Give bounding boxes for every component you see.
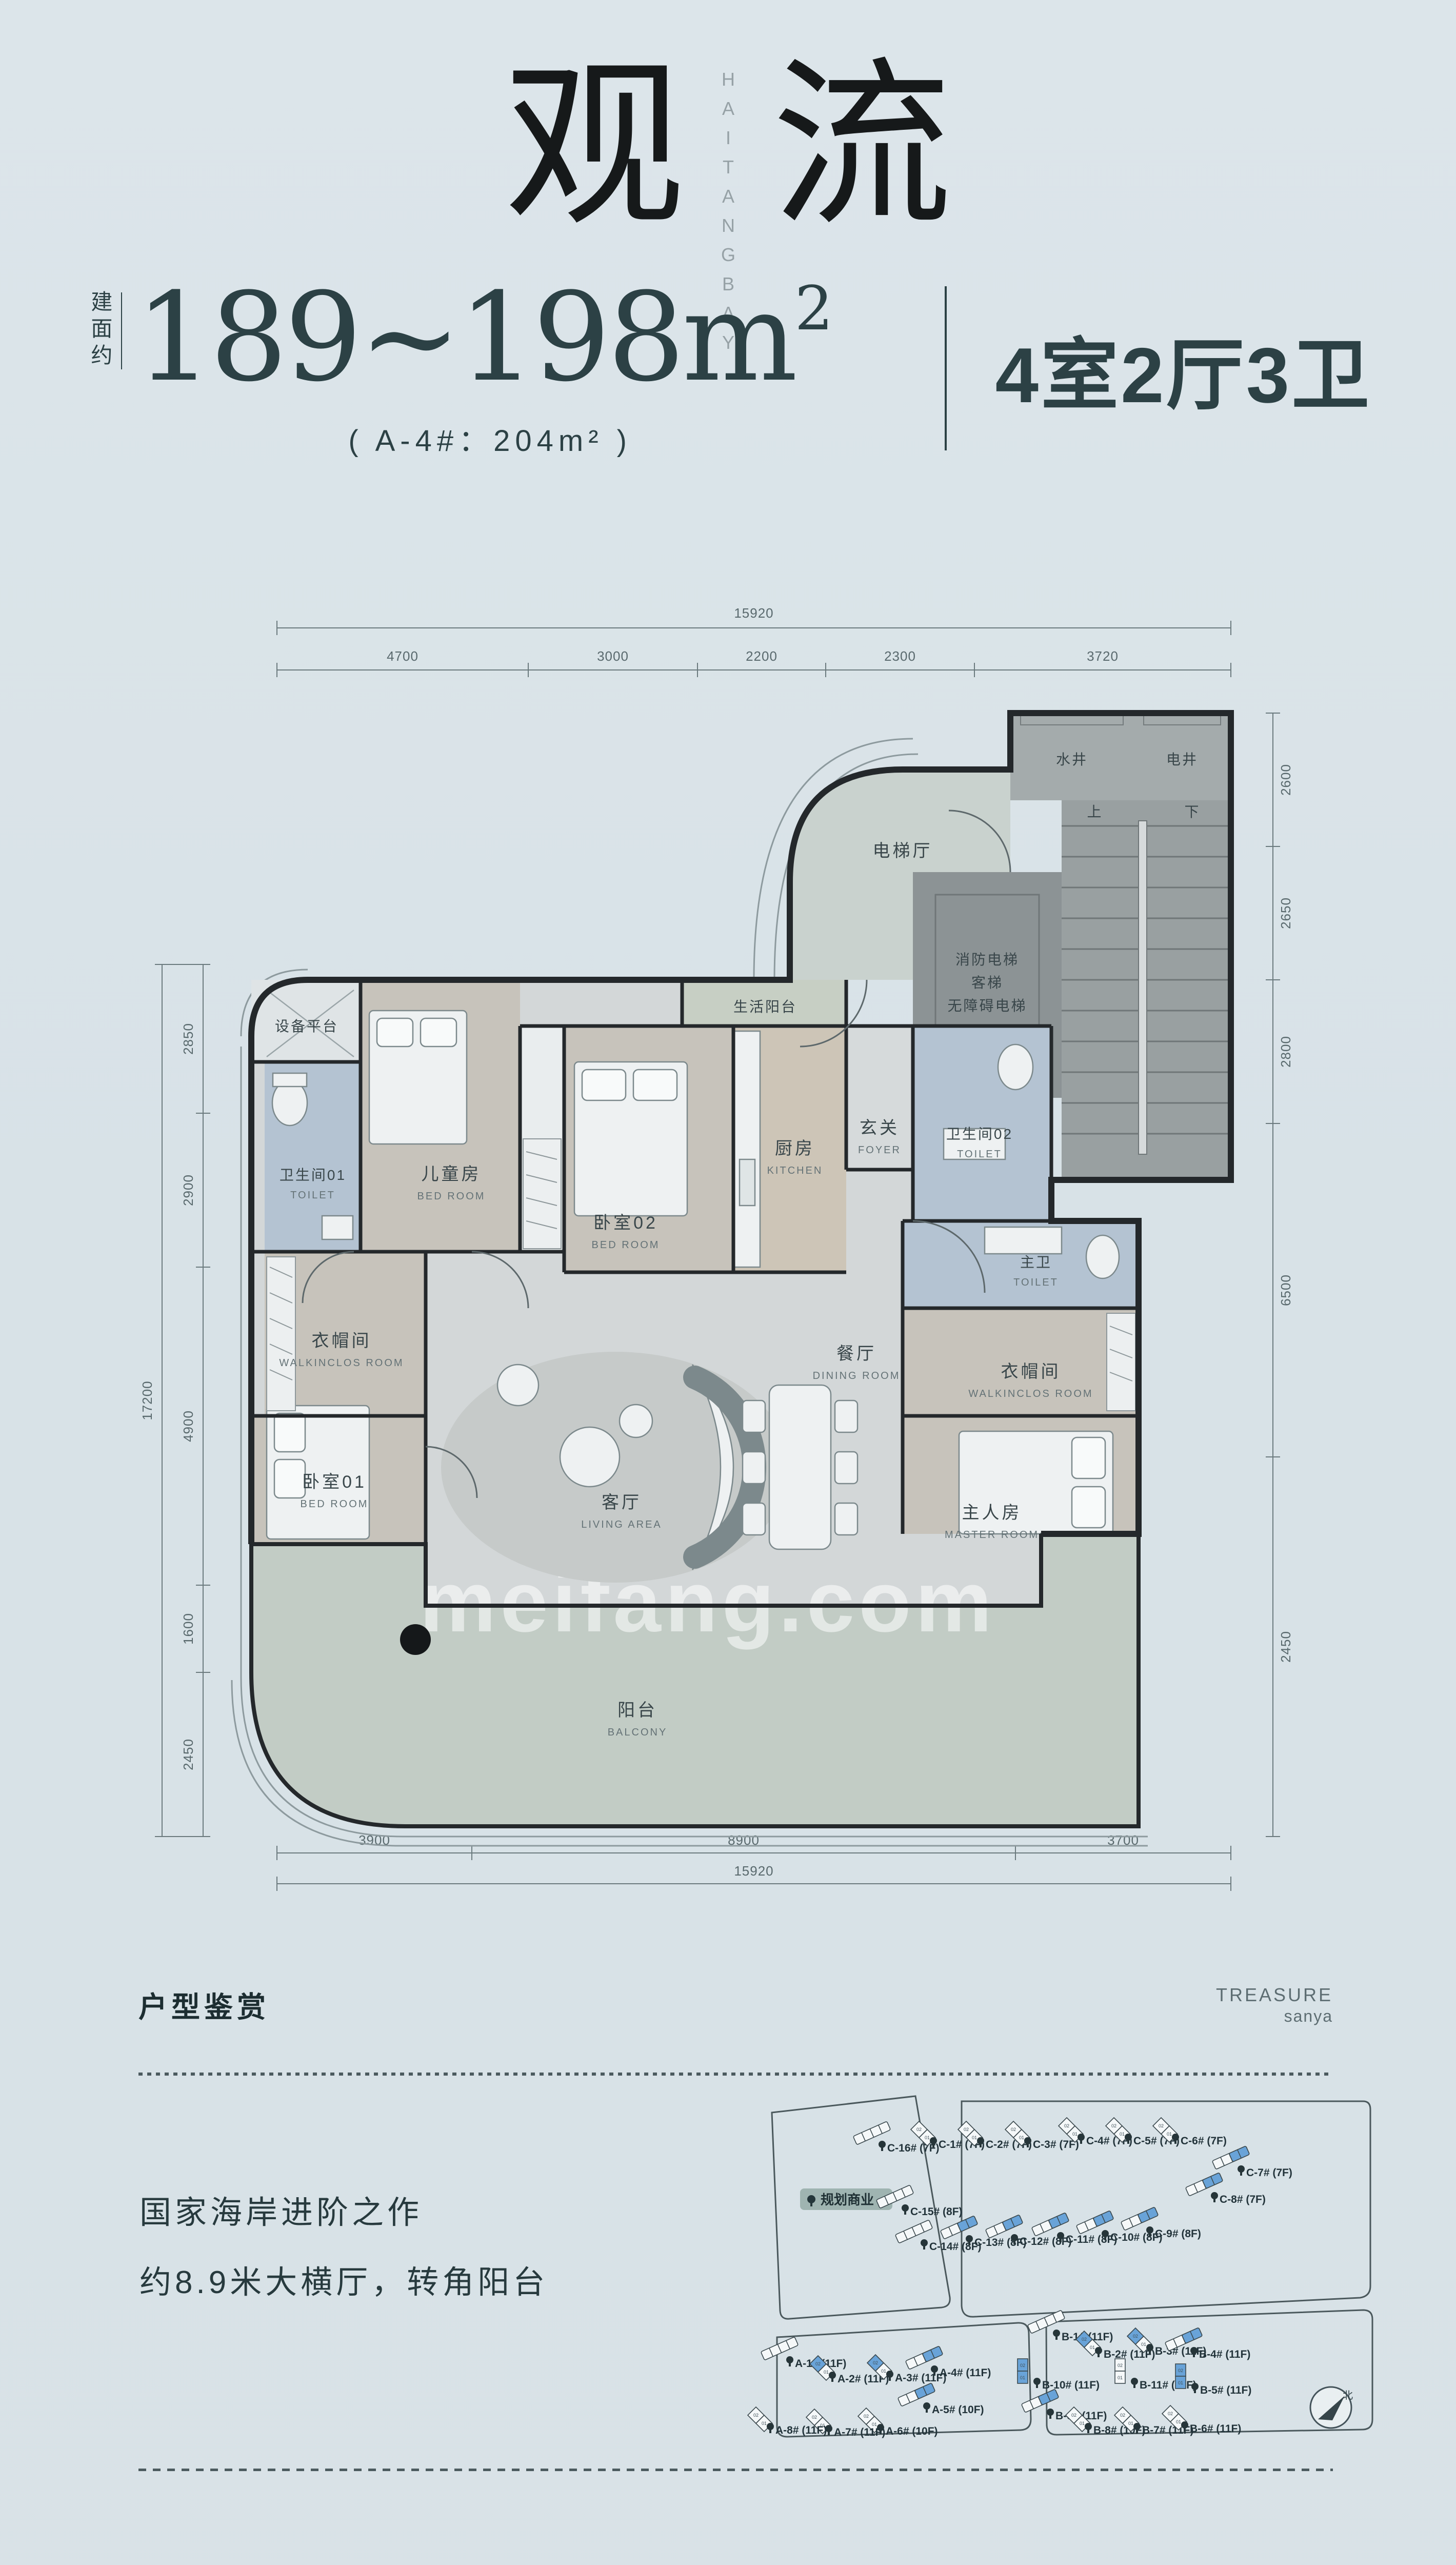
svg-text:2900: 2900 bbox=[181, 1174, 196, 1206]
svg-text:C-3# (7F): C-3# (7F) bbox=[1033, 2139, 1079, 2150]
svg-text:电井: 电井 bbox=[1166, 752, 1198, 767]
svg-text:2200: 2200 bbox=[746, 648, 777, 664]
svg-text:01: 01 bbox=[762, 2421, 767, 2426]
siteplan-building-marker: B-9# (11F) bbox=[1021, 2389, 1107, 2422]
svg-text:餐厅: 餐厅 bbox=[836, 1344, 876, 1364]
svg-text:C-9# (8F): C-9# (8F) bbox=[1155, 2228, 1201, 2240]
svg-text:A-4# (11F): A-4# (11F) bbox=[940, 2367, 991, 2379]
svg-text:01: 01 bbox=[1072, 2132, 1078, 2137]
room-label-foyer: 玄关FOYER bbox=[858, 1118, 901, 1156]
area-label: 建面约 bbox=[85, 290, 116, 370]
room-label-bed2: 卧室02BED ROOM bbox=[592, 1213, 660, 1251]
svg-text:B-6# (11F): B-6# (11F) bbox=[1190, 2423, 1241, 2435]
svg-text:02: 02 bbox=[1082, 2337, 1087, 2342]
svg-text:玄关: 玄关 bbox=[860, 1118, 900, 1138]
room-label-kitchen: 厨房KITCHEN bbox=[767, 1139, 823, 1176]
svg-text:FOYER: FOYER bbox=[858, 1145, 901, 1156]
svg-text:01: 01 bbox=[1128, 2421, 1133, 2426]
room-label-kids: 儿童房BED ROOM bbox=[417, 1165, 486, 1202]
title-watermark: HAITANGBAY bbox=[717, 55, 739, 284]
siteplan-building-marker: C-7# (7F) bbox=[1212, 2146, 1292, 2179]
svg-text:C-7# (7F): C-7# (7F) bbox=[1246, 2167, 1292, 2179]
svg-text:A-3# (11F): A-3# (11F) bbox=[895, 2372, 946, 2384]
room-label-water-well: 水井 bbox=[1056, 752, 1088, 767]
svg-text:02: 02 bbox=[1111, 2123, 1116, 2128]
area-note: ( A-4#：204m² ) bbox=[348, 417, 632, 460]
svg-text:BALCONY: BALCONY bbox=[608, 1727, 668, 1738]
svg-text:01: 01 bbox=[824, 2370, 829, 2375]
svg-text:A-7# (11F): A-7# (11F) bbox=[834, 2426, 885, 2438]
svg-text:C-14# (8F): C-14# (8F) bbox=[929, 2241, 982, 2253]
svg-text:17200: 17200 bbox=[139, 1380, 155, 1420]
svg-text:02: 02 bbox=[873, 2360, 878, 2365]
area-bracket-line bbox=[121, 292, 122, 369]
siteplan-building-marker: A-5# (10F) bbox=[897, 2383, 984, 2416]
svg-text:A-8# (11F): A-8# (11F) bbox=[775, 2424, 827, 2436]
svg-text:01: 01 bbox=[1019, 2135, 1024, 2140]
svg-text:02: 02 bbox=[1118, 2363, 1123, 2368]
svg-text:厨房: 厨房 bbox=[775, 1139, 815, 1158]
svg-text:C-13# (8F): C-13# (8F) bbox=[974, 2237, 1027, 2248]
svg-text:02: 02 bbox=[964, 2127, 969, 2132]
svg-text:TOILET: TOILET bbox=[957, 1149, 1002, 1160]
svg-text:01: 01 bbox=[1120, 2132, 1125, 2137]
svg-text:C-11# (8F): C-11# (8F) bbox=[1066, 2234, 1117, 2245]
selling-point-2: 约8.9米大横厅，转角阳台 bbox=[139, 2256, 548, 2302]
svg-text:02: 02 bbox=[1159, 2123, 1164, 2128]
svg-text:B-5# (11F): B-5# (11F) bbox=[1200, 2384, 1251, 2396]
svg-text:B-10# (11F): B-10# (11F) bbox=[1042, 2379, 1100, 2391]
svg-text:01: 01 bbox=[1090, 2345, 1095, 2350]
svg-text:B-2# (11F): B-2# (11F) bbox=[1104, 2349, 1155, 2360]
room-label-bed1: 卧室01BED ROOM bbox=[301, 1472, 369, 1510]
svg-text:4900: 4900 bbox=[181, 1410, 196, 1442]
svg-text:01: 01 bbox=[1167, 2132, 1172, 2137]
svg-text:BED ROOM: BED ROOM bbox=[417, 1191, 486, 1202]
north-arrow-icon: 北 bbox=[1310, 2387, 1353, 2428]
svg-text:衣帽间: 衣帽间 bbox=[312, 1331, 372, 1351]
title-char-left: 观 bbox=[504, 55, 685, 236]
svg-text:主卫: 主卫 bbox=[1020, 1254, 1052, 1270]
svg-text:2450: 2450 bbox=[1278, 1631, 1293, 1663]
svg-text:2650: 2650 bbox=[1278, 897, 1293, 929]
room-label-hall: 电梯厅 bbox=[873, 841, 933, 861]
svg-text:2600: 2600 bbox=[1278, 764, 1293, 796]
svg-text:01: 01 bbox=[1176, 2419, 1181, 2424]
poster-page: 观 HAITANGBAY 流 建面约 189~198m2 ( A-4#：204m… bbox=[0, 0, 1456, 2565]
svg-text:客梯: 客梯 bbox=[971, 975, 1003, 991]
svg-text:2850: 2850 bbox=[181, 1023, 196, 1055]
room-count-label: 4室2厅3卫 bbox=[995, 312, 1372, 425]
svg-text:C-12# (8F): C-12# (8F) bbox=[1020, 2236, 1072, 2247]
svg-text:MASTER ROOM: MASTER ROOM bbox=[945, 1529, 1039, 1541]
svg-text:C-8# (7F): C-8# (7F) bbox=[1220, 2194, 1266, 2205]
svg-text:2800: 2800 bbox=[1278, 1036, 1293, 1068]
svg-text:C-6# (7F): C-6# (7F) bbox=[1181, 2135, 1227, 2147]
svg-text:02: 02 bbox=[1178, 2368, 1183, 2373]
floorplan-drawing: 15920 4700 3000 2200 2300 3720 17200 285… bbox=[113, 585, 1344, 1898]
section-title: 户型鉴赏 bbox=[138, 1984, 270, 2026]
svg-text:C-15# (8F): C-15# (8F) bbox=[910, 2206, 963, 2218]
svg-text:4700: 4700 bbox=[387, 648, 418, 664]
svg-text:卫生间02: 卫生间02 bbox=[946, 1126, 1013, 1142]
svg-text:15920: 15920 bbox=[734, 605, 773, 621]
svg-text:KITCHEN: KITCHEN bbox=[767, 1165, 823, 1176]
dotted-divider bbox=[138, 2073, 1333, 2076]
svg-text:B-4# (11F): B-4# (11F) bbox=[1199, 2349, 1250, 2360]
svg-text:01: 01 bbox=[1141, 2342, 1146, 2347]
structure-column bbox=[400, 1624, 431, 1655]
svg-text:15920: 15920 bbox=[734, 1863, 773, 1879]
svg-text:衣帽间: 衣帽间 bbox=[1001, 1362, 1061, 1382]
svg-text:WALKINCLOS ROOM: WALKINCLOS ROOM bbox=[968, 1388, 1093, 1399]
area-superscript: 2 bbox=[794, 273, 833, 344]
svg-text:C-16# (7F): C-16# (7F) bbox=[887, 2142, 940, 2154]
svg-text:02: 02 bbox=[1011, 2127, 1016, 2132]
svg-text:3720: 3720 bbox=[1087, 648, 1119, 664]
svg-text:卫生间01: 卫生间01 bbox=[280, 1167, 346, 1183]
svg-text:主人房: 主人房 bbox=[962, 1503, 1022, 1523]
siteplan-building-marker: A-1# (11F) bbox=[761, 2337, 846, 2370]
svg-text:阳台: 阳台 bbox=[617, 1701, 657, 1720]
svg-text:01: 01 bbox=[1178, 2380, 1183, 2385]
svg-text:生活阳台: 生活阳台 bbox=[733, 999, 797, 1015]
svg-text:01: 01 bbox=[1020, 2375, 1025, 2380]
svg-text:北: 北 bbox=[1343, 2390, 1353, 2401]
svg-text:DINING ROOM: DINING ROOM bbox=[813, 1370, 901, 1382]
brand-line2: sanya bbox=[1284, 2007, 1333, 2026]
svg-text:2450: 2450 bbox=[181, 1739, 196, 1770]
brand-mark: TREASURE sanya bbox=[1216, 1984, 1333, 2026]
svg-text:02: 02 bbox=[916, 2127, 922, 2132]
svg-text:LIVING AREA: LIVING AREA bbox=[581, 1519, 662, 1530]
svg-text:1600: 1600 bbox=[181, 1613, 196, 1645]
room-label-equipment: 设备平台 bbox=[275, 1018, 338, 1034]
svg-text:上: 上 bbox=[1087, 804, 1103, 820]
svg-text:TOILET: TOILET bbox=[290, 1190, 335, 1201]
selling-point-1: 国家海岸进阶之作 bbox=[139, 2186, 423, 2233]
svg-text:BED ROOM: BED ROOM bbox=[592, 1239, 660, 1251]
room-label-elec-well: 电井 bbox=[1166, 752, 1198, 767]
svg-text:WALKINCLOS ROOM: WALKINCLOS ROOM bbox=[279, 1357, 404, 1369]
svg-text:A-6# (10F): A-6# (10F) bbox=[886, 2425, 938, 2437]
svg-text:卧室01: 卧室01 bbox=[302, 1472, 367, 1492]
page-title: 观 HAITANGBAY 流 bbox=[0, 55, 1456, 284]
svg-text:A-5# (10F): A-5# (10F) bbox=[932, 2404, 984, 2416]
svg-text:消防电梯: 消防电梯 bbox=[955, 952, 1019, 968]
svg-text:电梯厅: 电梯厅 bbox=[873, 841, 933, 861]
svg-text:3000: 3000 bbox=[597, 648, 629, 664]
svg-text:规划商业: 规划商业 bbox=[821, 2192, 874, 2207]
spec-row: 建面约 189~198m2 ( A-4#：204m² ) 4室2厅3卫 bbox=[0, 277, 1456, 460]
svg-text:02: 02 bbox=[1071, 2413, 1076, 2418]
siteplan-buildings: C-16# (7F) 02 01 C-1# (7F) 02 01 C-2# (7… bbox=[748, 2118, 1292, 2438]
dashed-divider bbox=[138, 2469, 1333, 2471]
svg-text:02: 02 bbox=[864, 2414, 869, 2419]
svg-text:水井: 水井 bbox=[1056, 752, 1088, 767]
spec-divider bbox=[945, 286, 947, 450]
svg-text:01: 01 bbox=[881, 2369, 886, 2374]
svg-text:01: 01 bbox=[1080, 2421, 1085, 2426]
svg-text:02: 02 bbox=[753, 2413, 759, 2418]
svg-text:02: 02 bbox=[1020, 2363, 1025, 2368]
svg-text:02: 02 bbox=[812, 2415, 817, 2420]
watermark-text: meifang.com bbox=[420, 1553, 996, 1650]
siteplan-building-marker: B-1# (11F) bbox=[1027, 2310, 1113, 2343]
svg-text:下: 下 bbox=[1184, 804, 1200, 820]
svg-text:01: 01 bbox=[972, 2135, 977, 2140]
title-char-right: 流 bbox=[772, 55, 952, 236]
svg-text:02: 02 bbox=[1133, 2334, 1138, 2339]
svg-text:01: 01 bbox=[1118, 2375, 1123, 2380]
svg-text:卧室02: 卧室02 bbox=[593, 1213, 658, 1233]
brand-line1: TREASURE bbox=[1216, 1984, 1333, 2006]
svg-text:儿童房: 儿童房 bbox=[422, 1165, 482, 1184]
area-block: 建面约 189~198m2 ( A-4#：204m² ) bbox=[85, 277, 896, 460]
svg-text:B-11# (11F): B-11# (11F) bbox=[1140, 2379, 1196, 2391]
area-value: 189~198m2 bbox=[135, 277, 833, 399]
svg-text:客厅: 客厅 bbox=[602, 1493, 642, 1512]
svg-text:02: 02 bbox=[1168, 2411, 1173, 2416]
svg-text:01: 01 bbox=[925, 2135, 930, 2140]
svg-text:6500: 6500 bbox=[1278, 1274, 1293, 1306]
svg-text:2300: 2300 bbox=[884, 648, 916, 664]
svg-text:BED ROOM: BED ROOM bbox=[301, 1498, 369, 1510]
siteplan-map: 规划商业 C-16# (7F) 02 01 C-1# (7F) 02 01 C-… bbox=[733, 2077, 1390, 2446]
svg-text:02: 02 bbox=[1064, 2123, 1069, 2128]
svg-text:设备平台: 设备平台 bbox=[275, 1018, 338, 1034]
svg-text:02: 02 bbox=[1120, 2413, 1125, 2418]
svg-text:02: 02 bbox=[815, 2361, 821, 2366]
room-label-service-balcony: 生活阳台 bbox=[733, 999, 797, 1015]
svg-text:TOILET: TOILET bbox=[1013, 1277, 1059, 1288]
svg-text:无障碍电梯: 无障碍电梯 bbox=[947, 998, 1027, 1014]
